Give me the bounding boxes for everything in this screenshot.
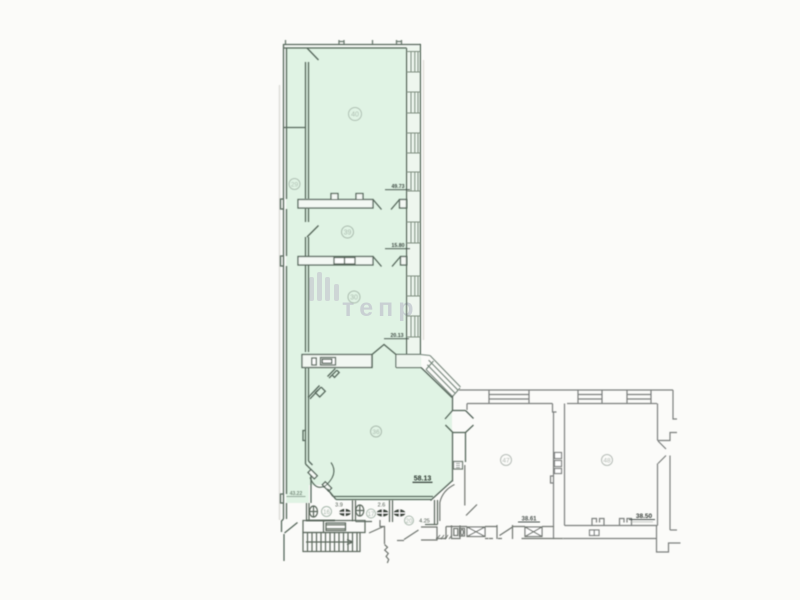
svg-text:48: 48: [603, 458, 611, 465]
svg-text:4.25: 4.25: [419, 519, 430, 525]
svg-text:29: 29: [291, 182, 299, 189]
svg-text:2.6: 2.6: [378, 503, 386, 509]
svg-text:36: 36: [372, 429, 380, 436]
svg-text:3.9: 3.9: [335, 503, 343, 509]
svg-text:38.50: 38.50: [636, 513, 653, 520]
svg-text:20: 20: [406, 519, 413, 525]
svg-text:40: 40: [351, 112, 359, 119]
svg-text:17: 17: [368, 512, 375, 518]
svg-text:30: 30: [350, 295, 358, 302]
svg-text:47: 47: [502, 458, 510, 465]
svg-text:39: 39: [344, 230, 352, 237]
svg-text:58.13: 58.13: [414, 476, 432, 483]
svg-text:20.13: 20.13: [391, 333, 404, 339]
svg-text:15.80: 15.80: [392, 243, 405, 249]
svg-text:49.73: 49.73: [392, 184, 405, 190]
svg-text:16: 16: [323, 510, 330, 516]
